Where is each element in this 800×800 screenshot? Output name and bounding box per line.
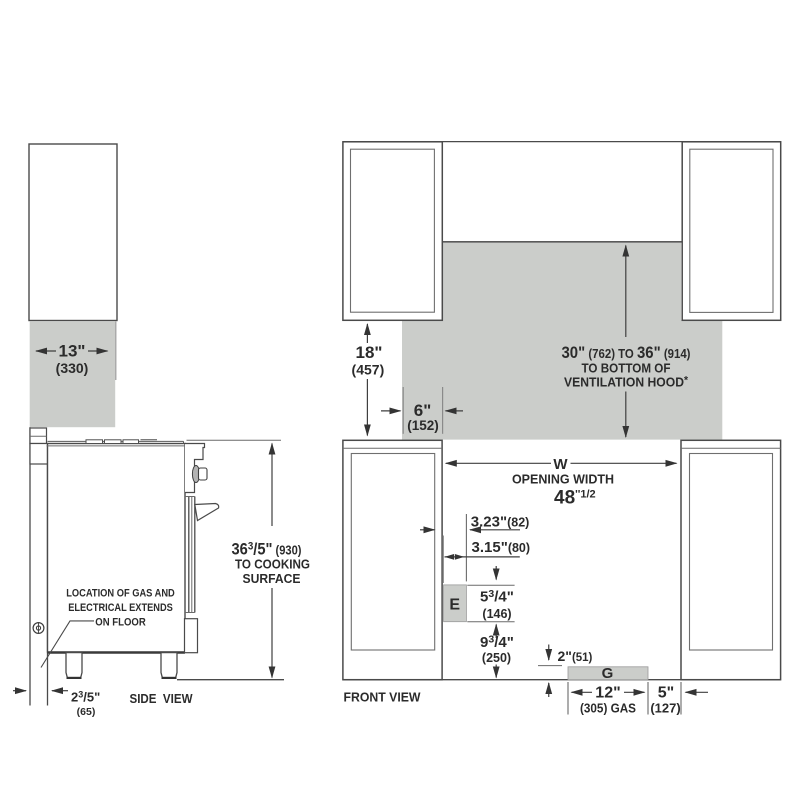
svg-text:3.23"(82): 3.23"(82): [471, 513, 530, 530]
svg-text:3.15"(80): 3.15"(80): [472, 539, 531, 556]
svg-text:12": 12": [595, 684, 620, 701]
svg-text:18": 18": [356, 343, 383, 362]
svg-text:E: E: [449, 597, 460, 614]
svg-text:W: W: [553, 456, 568, 473]
svg-text:G: G: [602, 665, 614, 682]
svg-text:(146): (146): [482, 607, 511, 621]
svg-text:(152): (152): [407, 418, 439, 433]
svg-text:(127): (127): [650, 701, 680, 716]
svg-text:53/4": 53/4": [480, 588, 514, 606]
svg-text:ON FLOOR: ON FLOOR: [95, 617, 146, 629]
svg-text:13": 13": [59, 342, 86, 361]
svg-text:VENTILATION HOOD*: VENTILATION HOOD*: [564, 374, 689, 389]
svg-text:SURFACE: SURFACE: [243, 571, 301, 586]
svg-text:OPENING WIDTH: OPENING WIDTH: [512, 473, 614, 487]
svg-text:(250): (250): [482, 651, 511, 665]
svg-text:23/5": 23/5": [71, 689, 100, 704]
svg-text:(330): (330): [56, 360, 89, 376]
svg-text:(65): (65): [77, 706, 96, 718]
svg-text:TO COOKING: TO COOKING: [235, 557, 310, 572]
svg-text:SIDE VIEW: SIDE VIEW: [130, 691, 194, 706]
svg-text:93/4": 93/4": [480, 634, 514, 652]
svg-text:(305) GAS: (305) GAS: [580, 701, 636, 716]
svg-text:5": 5": [658, 684, 674, 701]
svg-text:2"(51): 2"(51): [558, 648, 593, 664]
svg-text:TO BOTTOM OF: TO BOTTOM OF: [582, 360, 671, 375]
svg-text:LOCATION OF GAS AND: LOCATION OF GAS AND: [66, 588, 175, 600]
svg-text:(457): (457): [352, 361, 385, 377]
svg-text:48''1/2: 48''1/2: [554, 488, 596, 509]
svg-text:6": 6": [414, 401, 432, 420]
svg-text:ELECTRICAL EXTENDS: ELECTRICAL EXTENDS: [68, 602, 173, 614]
svg-text:FRONT VIEW: FRONT VIEW: [344, 690, 422, 705]
